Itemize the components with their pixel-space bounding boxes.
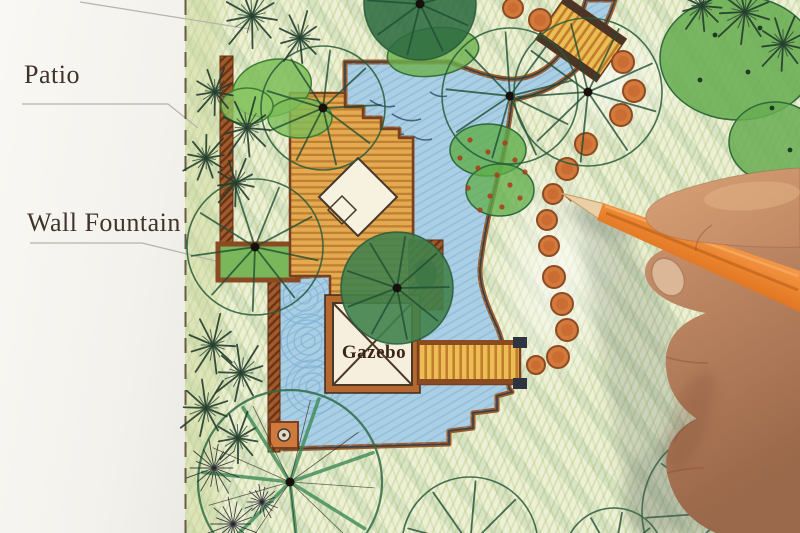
fern-symbol xyxy=(189,314,235,374)
stepping-stone xyxy=(503,0,523,18)
stepping-stone xyxy=(539,236,559,256)
stepping-stone xyxy=(543,266,565,288)
stepping-stone xyxy=(547,346,569,368)
plan-drawing xyxy=(0,0,800,533)
gazebo-label: Gazebo xyxy=(333,342,415,364)
stepping-stone xyxy=(612,51,634,73)
stepping-stone xyxy=(575,133,597,155)
boardwalk xyxy=(418,337,527,389)
leader-line-wall-fountain xyxy=(30,243,224,263)
stepping-stone xyxy=(529,9,551,31)
stepping-stone xyxy=(556,319,578,341)
patio-label: Patio xyxy=(24,60,80,90)
stepping-stone xyxy=(543,184,563,204)
wall-fountain-label: Wall Fountain xyxy=(27,208,181,238)
stepping-stone xyxy=(537,210,557,230)
stepping-stone xyxy=(610,104,632,126)
landscape-plan-photo: Patio Wall Fountain Gazebo xyxy=(0,0,800,533)
stepping-stone xyxy=(551,293,573,315)
fern-symbol xyxy=(227,0,277,48)
tree-symbol xyxy=(341,232,453,344)
tree-symbol xyxy=(402,477,538,533)
pond-corner-fixture xyxy=(270,422,298,448)
stepping-stone xyxy=(623,80,645,102)
stepping-stone xyxy=(556,158,578,180)
stepping-stone xyxy=(527,356,545,374)
fern-symbol xyxy=(280,11,320,63)
leader-line-top xyxy=(80,2,250,29)
fern-symbol xyxy=(183,135,224,180)
leader-line-patio xyxy=(22,104,198,128)
